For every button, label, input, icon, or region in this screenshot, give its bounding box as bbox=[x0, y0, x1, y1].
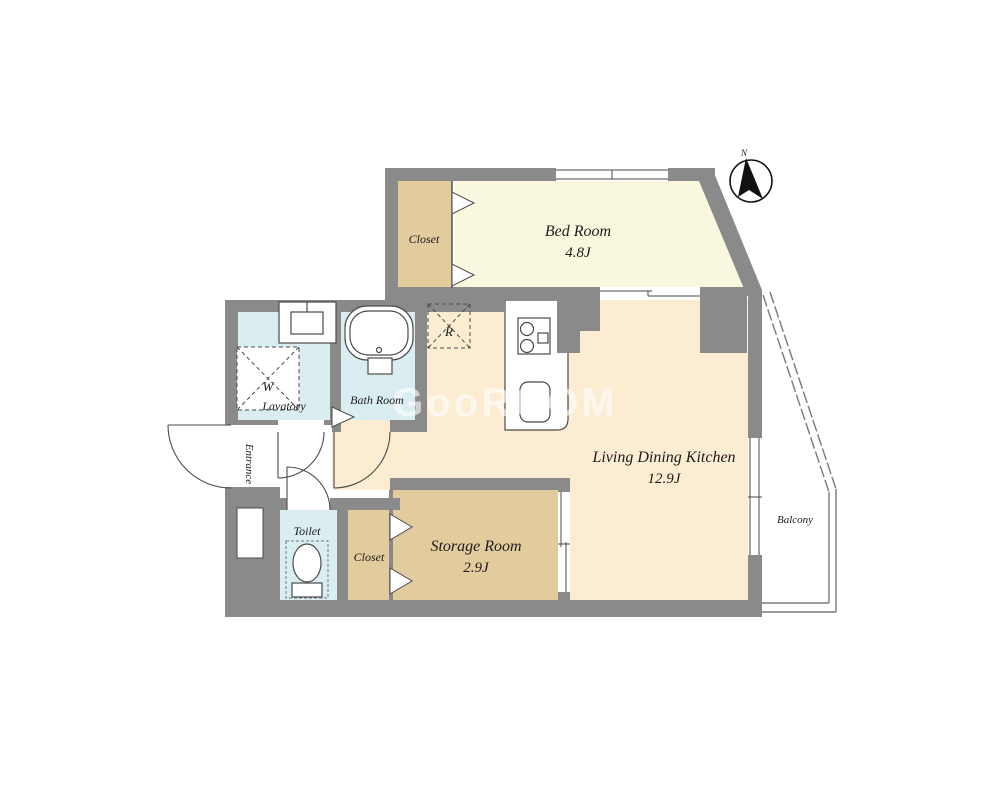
washer-label: W bbox=[263, 379, 275, 394]
toilet-tank bbox=[292, 583, 322, 597]
bathtub-drain bbox=[377, 348, 382, 353]
closet-lower-label: Closet bbox=[354, 550, 385, 564]
balcony-right-edge bbox=[829, 489, 836, 612]
compass-north-label: N bbox=[740, 148, 748, 158]
storage-label: Storage Room bbox=[430, 538, 521, 555]
compass-icon: N bbox=[730, 148, 772, 202]
hall-sliver bbox=[332, 490, 390, 498]
ldk-area: 12.9J bbox=[648, 471, 682, 487]
toilet-label: Toilet bbox=[294, 524, 322, 538]
toilet-bowl-icon bbox=[293, 544, 321, 582]
stove-grill bbox=[538, 333, 548, 343]
storage-sliding-gap bbox=[558, 492, 570, 592]
bathroom-label: Bath Room bbox=[350, 393, 404, 407]
closet-upper-label: Closet bbox=[409, 232, 440, 246]
floorplan-svg: N GooROOM Bed Room 4.8J Living Dining Ki… bbox=[0, 0, 999, 801]
ldk-label: Living Dining Kitchen bbox=[591, 449, 735, 466]
storage-area: 2.9J bbox=[463, 560, 490, 576]
bedroom-sliding-gap bbox=[600, 287, 700, 300]
wall-toilet-left bbox=[268, 498, 280, 608]
balcony-label: Balcony bbox=[777, 514, 813, 526]
bath-faucet bbox=[368, 358, 392, 374]
stove-burner-1 bbox=[521, 323, 534, 336]
wall-kitchen-step-2 bbox=[557, 300, 580, 353]
floorplan-image: N GooROOM Bed Room 4.8J Living Dining Ki… bbox=[0, 0, 999, 801]
balcony-outline bbox=[762, 292, 836, 612]
entrance-label: Entrance bbox=[243, 443, 255, 484]
wall-pillar bbox=[700, 287, 747, 353]
entrance-door-arc bbox=[168, 425, 231, 488]
bedroom-area: 4.8J bbox=[565, 245, 592, 261]
wall-toilet-closet-divider bbox=[337, 498, 348, 600]
stove-burner-2 bbox=[521, 340, 534, 353]
wash-basin-bowl bbox=[291, 312, 323, 334]
watermark-text: GooROOM bbox=[392, 381, 617, 425]
balcony-bottom-edge bbox=[762, 603, 836, 612]
wall-storage-top bbox=[390, 478, 570, 490]
balcony-diagonal bbox=[763, 292, 836, 492]
lavatory-label: Lavatory bbox=[261, 399, 306, 413]
wall-storage-right-a bbox=[558, 478, 570, 492]
wall-left-upper bbox=[385, 168, 398, 300]
wall-bottom bbox=[280, 600, 762, 617]
wall-bedroom-bottom bbox=[385, 287, 600, 300]
wall-left-outer bbox=[225, 300, 238, 425]
bedroom-label: Bed Room bbox=[545, 223, 611, 240]
entrance-step bbox=[237, 508, 263, 558]
refrigerator-label: R bbox=[444, 324, 453, 339]
